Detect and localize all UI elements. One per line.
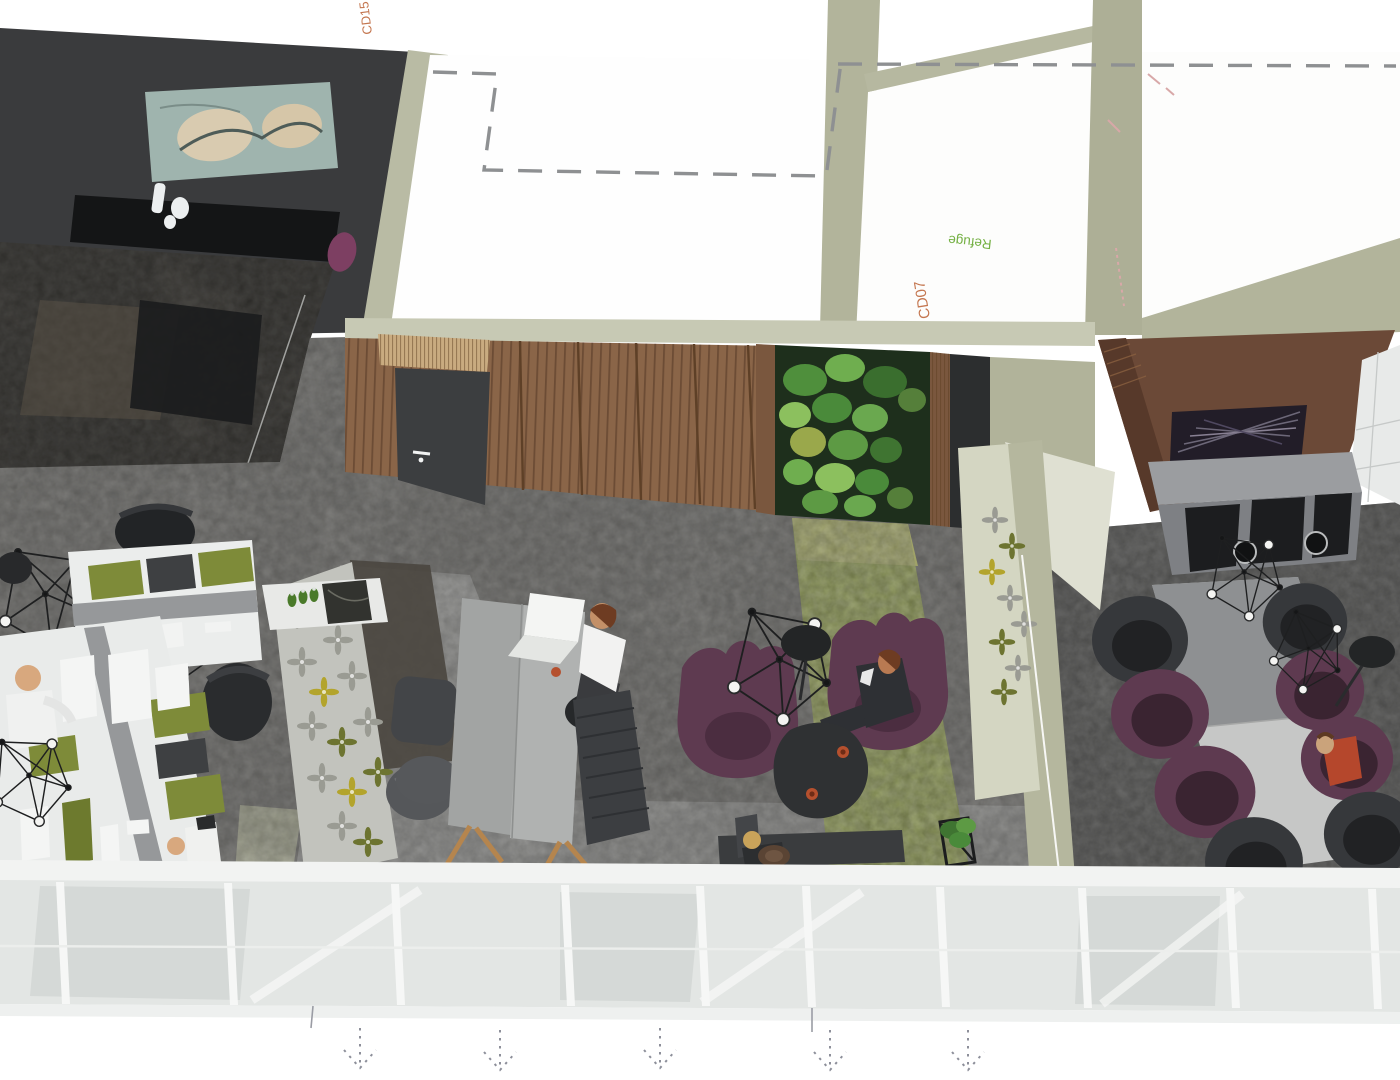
table-grain [765,850,783,862]
office-rendering: CD15 CD07 Refuge [0,0,1400,1080]
frame-texture [930,352,950,527]
dark-stool [390,675,459,747]
office-desk [130,300,262,425]
render-canvas: CD15 CD07 Refuge [0,0,1400,1080]
marble-cube-table [322,580,372,624]
room-top-center [390,55,828,332]
tv-screen [1170,405,1307,462]
tub-chair-dark [1092,596,1188,684]
tub-chair-purple [1111,669,1209,759]
wall-band-b [1085,0,1142,335]
coffee-cup [551,667,561,677]
green-wall-frame-left [756,344,775,515]
curtain-wall [0,860,1400,1024]
refreshment-tables [262,578,388,630]
